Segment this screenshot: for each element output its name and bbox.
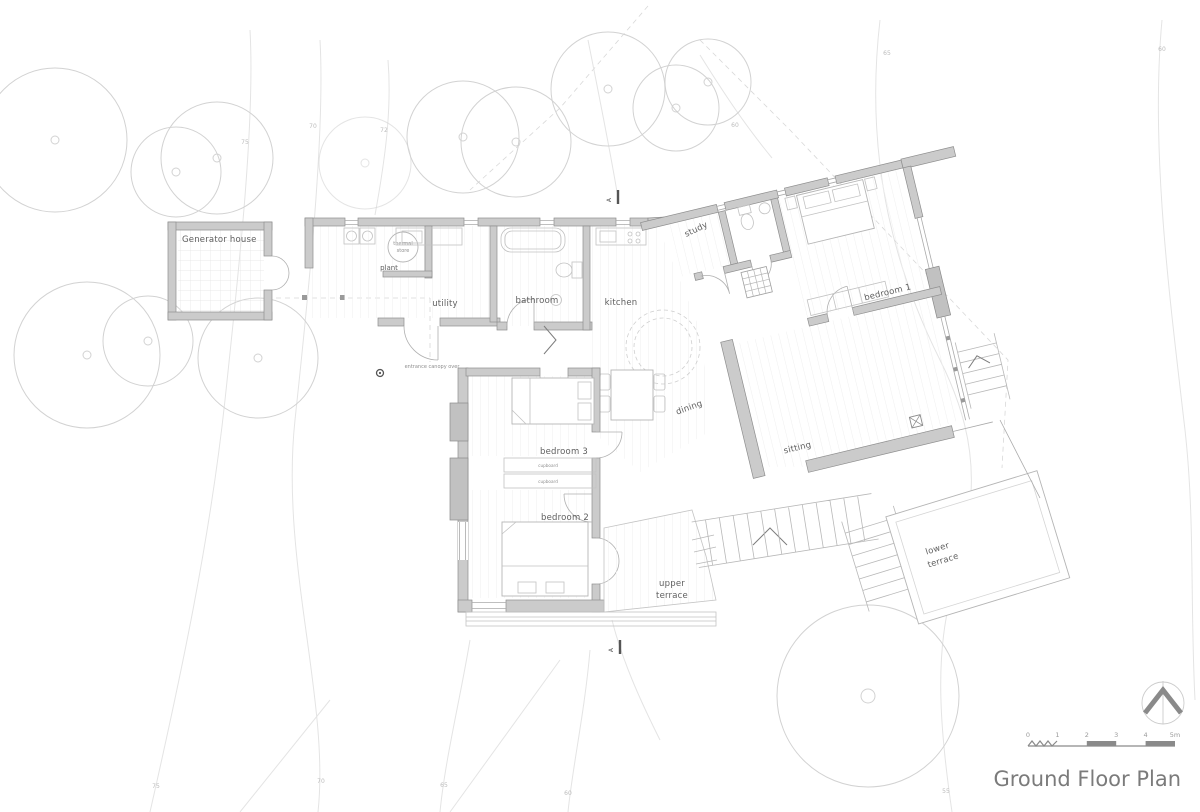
bedroom2-bed [502,522,588,596]
room-label-utility: utility [432,299,458,309]
contour-label: 60 [731,122,739,129]
section-marker-top: A [606,190,618,204]
cupboard-label: cupboard [538,463,558,468]
section-letter: A [608,647,615,652]
room-label-kitchen: kitchen [605,298,638,308]
study-door [701,271,730,300]
entrance-door [404,326,438,360]
scale-bar: 0 1 2 3 4 5m [1026,731,1180,746]
window [472,603,506,609]
contour-label: 75 [241,139,249,146]
thermal-store-label: store [397,248,410,254]
room-label-bedroom2: bedroom 2 [541,513,589,523]
wall-line [953,422,993,432]
contour-label: 65 [440,782,448,789]
floor-plan-canvas: 75 70 72 60 65 60 75 70 65 60 55 Generat… [0,0,1200,812]
scale-tick: 2 [1085,731,1089,739]
room-label-upper-terrace: upper [659,579,685,589]
scale-tick: 4 [1144,731,1148,739]
room-label-upper-terrace: terrace [656,591,688,601]
tree [461,87,571,197]
contour-label: 70 [317,778,325,785]
scale-block [1087,741,1116,746]
contour-label: 72 [380,127,388,134]
east-steps [955,333,1010,408]
tree [0,68,127,212]
stairs-arrow [753,528,787,545]
contour-label: 75 [152,783,160,790]
stove [909,415,922,428]
tree [161,102,273,214]
tree [407,81,519,193]
cupboard-label: cupboard [538,479,558,484]
survey-marker-dot [379,372,381,374]
canopy-label: entrance canopy over [405,364,461,370]
tree [551,32,665,146]
generator-house: Generator house [168,222,289,320]
generator-door-arc [272,256,289,273]
contour-label: 60 [564,790,572,797]
plan-title: Ground Floor Plan [993,767,1181,791]
contour-label: 55 [942,788,950,795]
canopy-post [302,295,307,300]
deck-edge [466,612,716,626]
tree [777,605,959,787]
scale-tick: 0 [1026,731,1030,739]
bedrooms-wing: cupboard cupboard bedroom 3 bedroom 2 [450,368,622,612]
tree [319,117,411,209]
scale-zigzag [1028,741,1057,746]
lower-terrace: lower terrace [886,471,1070,624]
room-label-plant: plant [380,264,398,272]
tree [665,39,751,125]
north-arrow [1142,681,1184,724]
room-label-bedroom3: bedroom 3 [540,447,588,457]
terrace-stairs-long [692,494,879,568]
bedroom3-bed [512,378,594,424]
contour-label: 60 [1158,46,1166,53]
floor-plan-page: 75 70 72 60 65 60 75 70 65 60 55 Generat… [0,0,1200,812]
cupboards: cupboard cupboard [504,458,596,488]
floor-grid [741,267,772,298]
scale-tick: 1 [1055,731,1059,739]
rotated-wing: study bedroom 1 sitting [640,147,1019,497]
generator-door-arc [272,273,289,290]
scale-tick: 5m [1170,731,1180,739]
room-label-bathroom: bathroom [516,296,559,306]
contour-label: 65 [883,50,891,57]
tree [131,127,221,217]
contour-label: 70 [309,123,317,130]
thermal-store [388,232,418,262]
scale-block [1146,741,1175,746]
tree [14,282,160,428]
scale-tick: 3 [1114,731,1118,739]
section-letter: A [606,197,613,202]
tree [633,65,719,151]
room-label-generator-house: Generator house [182,235,257,245]
